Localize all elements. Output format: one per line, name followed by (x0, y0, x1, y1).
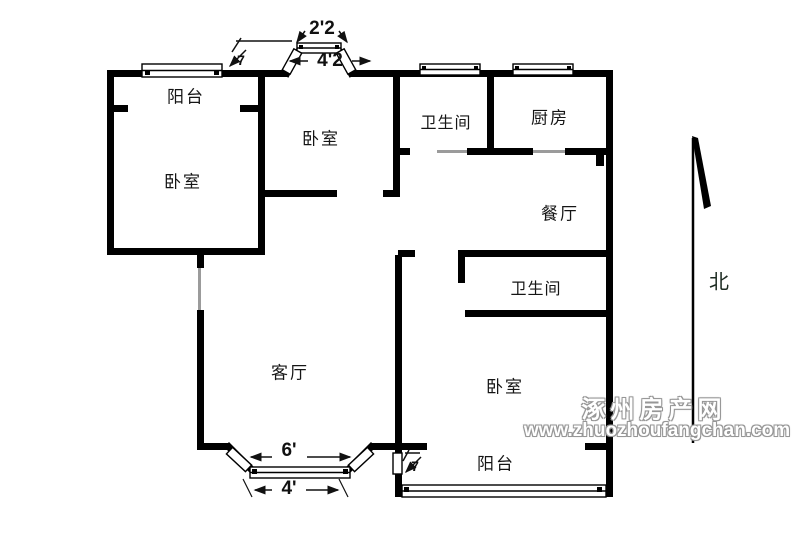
dimension-bay-bottom-inner: 4' (281, 478, 296, 500)
window-bay-bottom-left-diagonal (226, 447, 251, 471)
room-label-balcony-top: 阳台 (167, 83, 205, 108)
bay-diagonal-walls (229, 51, 371, 468)
dimension-bay-top-inner: 2'2 (309, 18, 335, 40)
dimension-bay-bottom-outer: 6' (281, 440, 296, 462)
watermark-site-url: www.zhuozhoufangchan.com (524, 420, 790, 442)
room-label-bedroom-middle: 卧室 (302, 125, 340, 150)
room-label-bedroom-left: 卧室 (164, 168, 202, 193)
kitchen-door-opening (533, 150, 565, 153)
bathroom-top-door-opening (437, 150, 467, 153)
dimension-mark-top-left: 7 (237, 52, 245, 68)
dimension-mark-bottom-mid: 7 (411, 458, 419, 474)
window-kitchen (513, 64, 573, 75)
window-balcony-top (142, 64, 222, 77)
room-label-bathroom-top: 卫生间 (420, 109, 471, 133)
window-bathroom-top (420, 64, 480, 75)
room-label-bathroom-middle: 卫生间 (510, 275, 561, 299)
window-balcony-bottom (402, 485, 606, 497)
room-label-bedroom-right: 卧室 (486, 373, 524, 398)
room-label-kitchen: 厨房 (531, 104, 569, 129)
room-label-balcony-bottom: 阳台 (477, 450, 515, 475)
window-bay-bottom-right-diagonal (348, 447, 373, 471)
north-label: 北 (709, 266, 729, 295)
floor-plan-canvas: 阳台 卧室 卧室 卫生间 厨房 餐厅 卫生间 客厅 卧室 阳台 2'2 4'2 … (0, 0, 800, 537)
balcony-door-leaf (393, 453, 402, 474)
dimension-bay-top-outer: 4'2 (317, 50, 343, 72)
room-label-living-room: 客厅 (271, 359, 309, 384)
entry-door-opening (198, 268, 201, 310)
room-label-dining-room: 餐厅 (541, 200, 579, 225)
floor-plan-linework (0, 0, 800, 537)
window-bay-bottom (250, 467, 350, 478)
